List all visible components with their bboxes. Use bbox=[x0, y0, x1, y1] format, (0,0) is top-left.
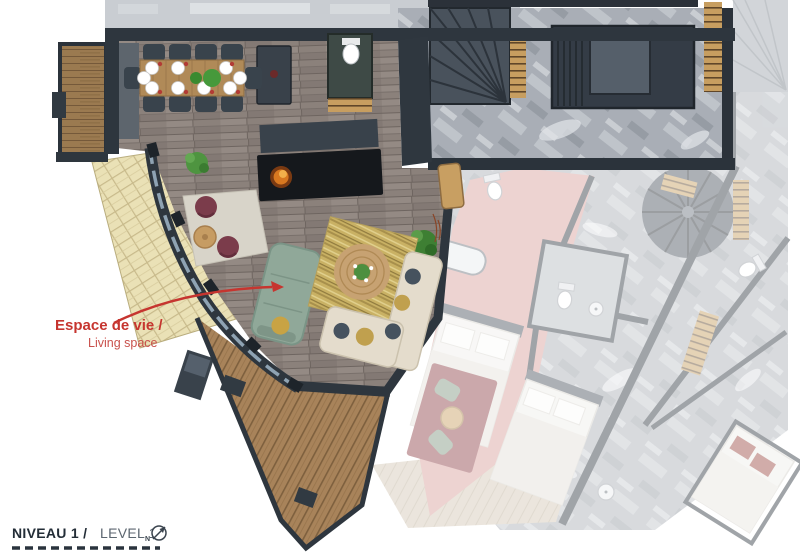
toilet-icon bbox=[342, 38, 360, 64]
balcony bbox=[52, 44, 106, 158]
wc-shelf bbox=[328, 98, 372, 112]
fireplace bbox=[255, 119, 383, 201]
compass-north-letter: N bbox=[145, 536, 150, 543]
north-compass-icon bbox=[152, 526, 166, 540]
annotation-label-fr: Espace de vie / bbox=[55, 317, 163, 334]
roof-window-box bbox=[174, 350, 214, 400]
ladder-shelf bbox=[704, 2, 722, 92]
level-title-fr: NIVEAU 1 / bbox=[12, 525, 87, 541]
centerpiece-plant-icon bbox=[190, 72, 202, 84]
centerpiece-plant-icon bbox=[203, 69, 221, 87]
sink-drain bbox=[595, 308, 598, 311]
ladder-shelf bbox=[510, 34, 526, 98]
corridor-top-wall bbox=[428, 0, 698, 7]
stone-corridor bbox=[398, 0, 733, 166]
floor-plan-page: Espace de vie / Living space NIVEAU 1 / … bbox=[0, 0, 800, 553]
side-table-center bbox=[202, 234, 208, 240]
winder-staircase bbox=[430, 8, 510, 104]
cooktop-icon bbox=[270, 70, 278, 78]
kitchen-island bbox=[257, 46, 291, 104]
wc-room bbox=[328, 34, 372, 112]
elevator-shaft bbox=[590, 40, 650, 94]
bench bbox=[438, 163, 464, 209]
entry-floor bbox=[119, 43, 139, 139]
sink-drain bbox=[605, 491, 608, 494]
annotation-label-en: Living space bbox=[88, 336, 158, 350]
turret-roof bbox=[733, 0, 788, 92]
level-title-block: NIVEAU 1 / LEVEL 1 N bbox=[12, 525, 166, 548]
floor-plan-drawing: Espace de vie / Living space NIVEAU 1 / … bbox=[0, 0, 800, 553]
shelf-strip bbox=[733, 180, 749, 240]
lounge-corner bbox=[183, 190, 268, 266]
spiral-staircase bbox=[642, 166, 734, 258]
